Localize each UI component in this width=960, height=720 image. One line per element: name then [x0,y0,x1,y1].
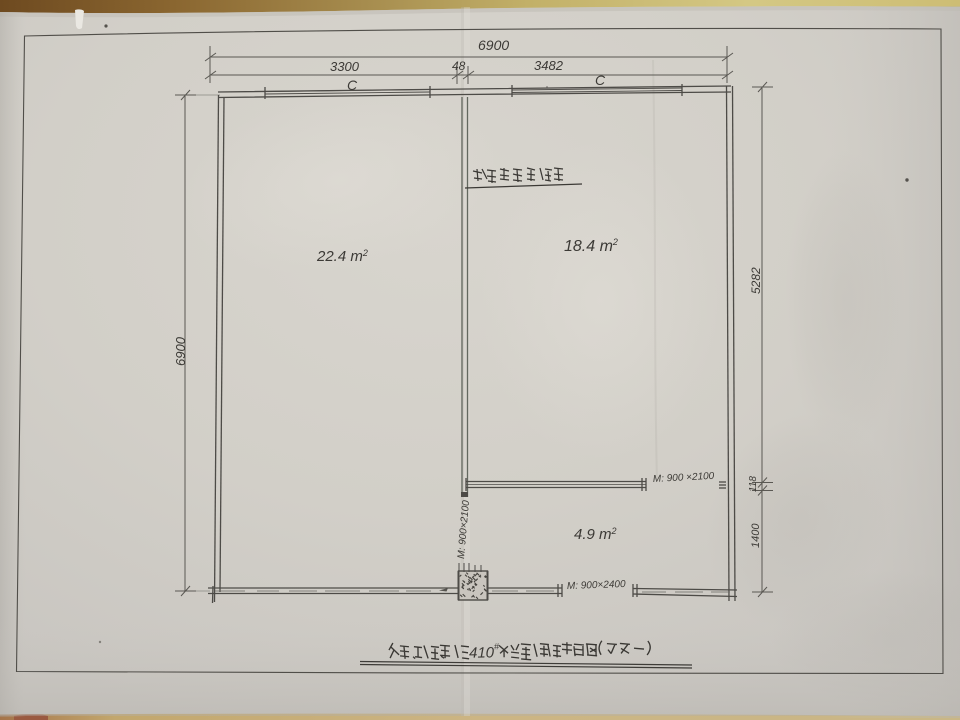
svg-text:4.9 m2: 4.9 m2 [574,526,617,543]
svg-text:22.4 m2: 22.4 m2 [316,248,368,265]
svg-text:118: 118 [748,476,759,492]
svg-text:18.4 m2: 18.4 m2 [564,237,618,255]
svg-text:3300: 3300 [330,59,360,74]
svg-text:6900: 6900 [173,336,188,366]
svg-text:M: 900×2400: M: 900×2400 [567,579,626,592]
svg-text:C: C [595,72,606,88]
svg-text:C: C [347,77,358,93]
svg-text:3482: 3482 [534,58,564,73]
svg-text:48: 48 [452,59,466,73]
svg-text:6900: 6900 [478,37,509,53]
svg-text:5282: 5282 [749,267,763,294]
svg-text:1400: 1400 [750,523,762,548]
